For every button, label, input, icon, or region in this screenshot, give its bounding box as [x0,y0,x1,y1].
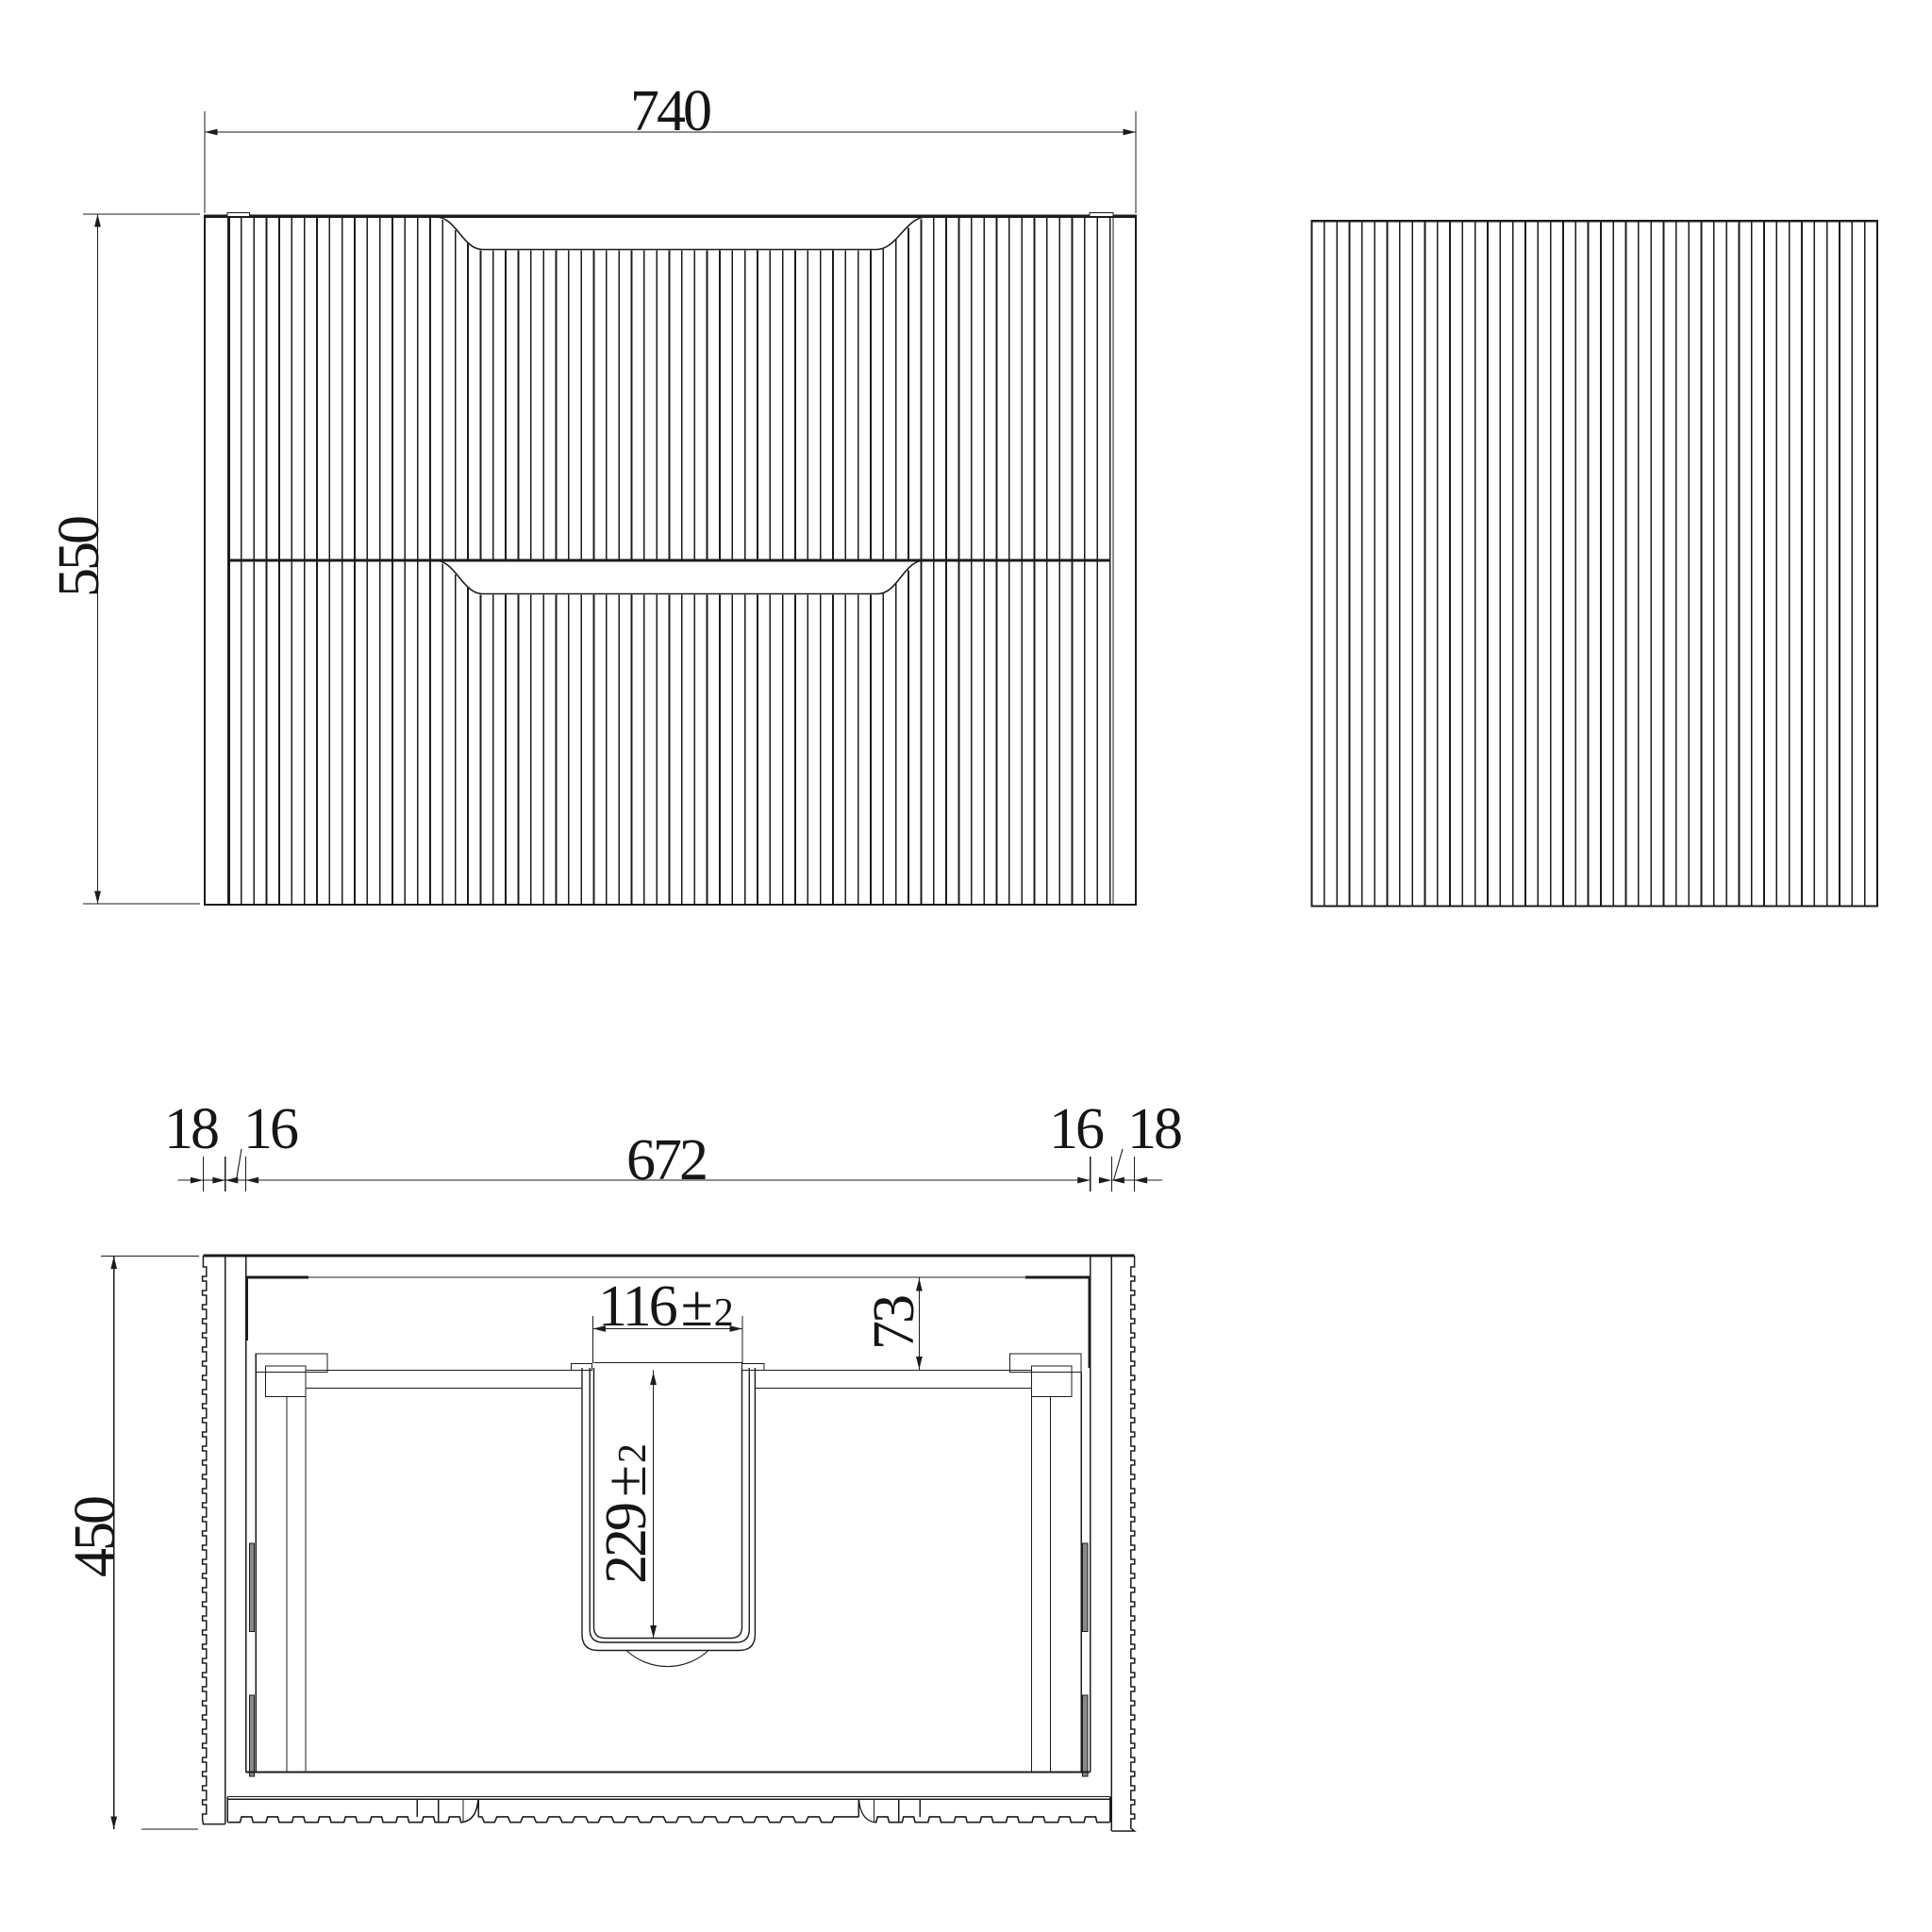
svg-text:672: 672 [626,1128,706,1192]
svg-text:16: 16 [243,1097,298,1161]
svg-text:740: 740 [630,79,710,143]
svg-text:16: 16 [1049,1097,1104,1161]
svg-text:450: 450 [63,1497,127,1577]
svg-text:73: 73 [862,1296,926,1350]
svg-text:18: 18 [164,1097,218,1161]
svg-text:550: 550 [47,517,111,597]
svg-text:18: 18 [1127,1097,1181,1161]
